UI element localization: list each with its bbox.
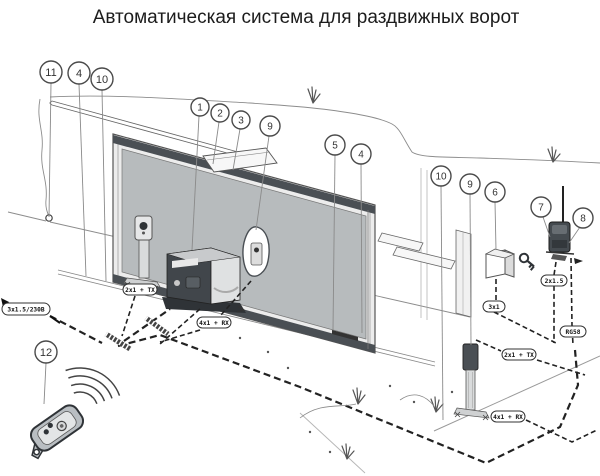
callout-9-right: 9: [460, 174, 480, 194]
svg-text:3x1: 3x1: [488, 304, 499, 311]
svg-text:5: 5: [332, 141, 338, 152]
callout-11: 11: [40, 61, 62, 83]
motor-release-lock: [174, 280, 180, 286]
svg-text:4: 4: [358, 150, 364, 161]
svg-text:9: 9: [467, 180, 473, 191]
svg-text:3x1.5/230В: 3x1.5/230В: [7, 307, 45, 314]
callout-6: 6: [485, 182, 505, 202]
cable-label-coax: RG58: [560, 326, 586, 337]
svg-text:2x1.5: 2x1.5: [545, 278, 564, 285]
page-title: Автоматическая система для раздвижных во…: [93, 7, 520, 28]
svg-text:3: 3: [238, 116, 244, 127]
svg-text:12: 12: [40, 347, 52, 359]
wire-txright-b: [537, 360, 585, 375]
callout-2: 2: [211, 104, 229, 122]
svg-text:4x1 + RX: 4x1 + RX: [199, 320, 229, 327]
cable-label-key: 3x1: [483, 301, 505, 312]
svg-text:9: 9: [267, 122, 273, 133]
wire-flasher: [554, 262, 556, 343]
callout-10-left: 10: [91, 68, 113, 90]
svg-text:RG58: RG58: [566, 329, 581, 336]
remote-control: [20, 402, 87, 460]
svg-text:10: 10: [96, 74, 108, 86]
photocell-head-right: [463, 344, 478, 370]
cable-label-rx-right: 4x1 + RX: [491, 411, 525, 422]
cable-label-power: 3x1.5/230В: [2, 303, 50, 315]
key-icon: [518, 252, 537, 270]
wire-txleft-down: [122, 296, 135, 336]
motor-release-door: [186, 277, 200, 288]
gearmotor-unit: [162, 248, 246, 313]
svg-text:1: 1: [197, 103, 203, 114]
wall-ledge-lower: [393, 247, 455, 269]
svg-text:7: 7: [538, 203, 544, 214]
svg-text:2x1 + TX: 2x1 + TX: [125, 287, 155, 294]
ground-edge-bottom: [300, 413, 365, 473]
callout-9-left: 9: [260, 116, 280, 136]
callout-8: 8: [573, 208, 593, 228]
callout-4-right: 4: [351, 144, 371, 164]
callout-5: 5: [325, 135, 345, 155]
cable-label-tx-right: 2x1 + TX: [502, 349, 536, 360]
diagram-page: Автоматическая система для раздвижных во…: [0, 0, 600, 476]
callout-7: 7: [531, 197, 551, 217]
svg-text:4: 4: [76, 68, 82, 80]
key-switch-box: [486, 249, 514, 278]
wall-left-edge: [39, 99, 50, 220]
fence-column: [456, 230, 471, 317]
gate-photocell-bracket: [243, 227, 269, 276]
wire-key-b: [494, 312, 556, 343]
svg-text:10: 10: [435, 172, 447, 183]
callout-10-right: 10: [431, 166, 451, 186]
ground-tick-left: [8, 212, 46, 221]
cable-label-tx-left: 2x1 + TX: [123, 284, 157, 295]
callout-12: 12: [35, 341, 57, 363]
cable-label-flasher: 2x1.5: [541, 275, 567, 286]
svg-text:2x1 + TX: 2x1 + TX: [504, 352, 534, 359]
svg-text:2: 2: [217, 109, 223, 120]
mount-arrow-icon: [574, 258, 583, 264]
conduit-tube-2: [146, 318, 168, 334]
callout-4-left: 4: [68, 62, 90, 84]
wire-txright-a: [476, 340, 501, 351]
trench-power: [50, 316, 102, 343]
callout-1: 1: [191, 98, 209, 116]
radio-waves-icon: [66, 368, 120, 404]
svg-text:11: 11: [45, 67, 56, 79]
conduit-tube-1: [106, 334, 130, 349]
callout-3: 3: [232, 111, 250, 129]
wire-motor-2: [160, 309, 200, 344]
svg-text:8: 8: [580, 214, 586, 225]
cable-label-rx-left: 4x1 + RX: [197, 317, 231, 328]
gate-system-diagram: Автоматическая система для раздвижных во…: [0, 0, 600, 476]
svg-text:6: 6: [492, 188, 498, 199]
svg-text:4x1 + RX: 4x1 + RX: [493, 414, 523, 421]
